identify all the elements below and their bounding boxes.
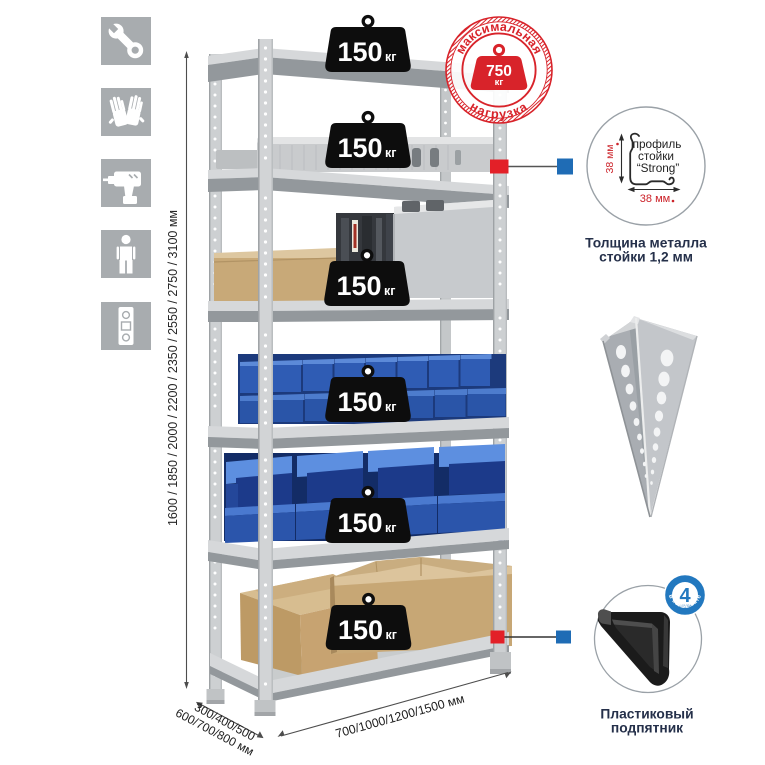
svg-text:кг: кг	[385, 400, 396, 414]
svg-text:стойки 1,2 мм: стойки 1,2 мм	[599, 250, 693, 265]
svg-text:150: 150	[337, 508, 382, 538]
svg-text:кг: кг	[385, 50, 396, 64]
svg-text:кг: кг	[385, 521, 396, 535]
svg-text:кг: кг	[385, 146, 396, 160]
svg-text:кг: кг	[495, 77, 504, 88]
svg-text:Толщина металла: Толщина металла	[585, 236, 707, 251]
svg-text:1600 / 1850 / 2000 / 2200 / 23: 1600 / 1850 / 2000 / 2200 / 2350 / 2550 …	[166, 210, 180, 526]
svg-text:150: 150	[337, 37, 382, 67]
svg-text:38 мм: 38 мм	[604, 144, 616, 173]
svg-text:подпятник: подпятник	[611, 721, 683, 736]
svg-text:38 мм: 38 мм	[640, 193, 670, 205]
svg-text:150: 150	[337, 387, 382, 417]
svg-text:кг: кг	[384, 284, 395, 298]
svg-text:“Strong”: “Strong”	[637, 161, 680, 175]
svg-text:150: 150	[337, 133, 382, 163]
svg-text:150: 150	[336, 271, 381, 301]
svg-text:кг: кг	[386, 628, 397, 642]
svg-text:Пластиковый: Пластиковый	[600, 707, 693, 722]
svg-text:150: 150	[338, 615, 383, 645]
